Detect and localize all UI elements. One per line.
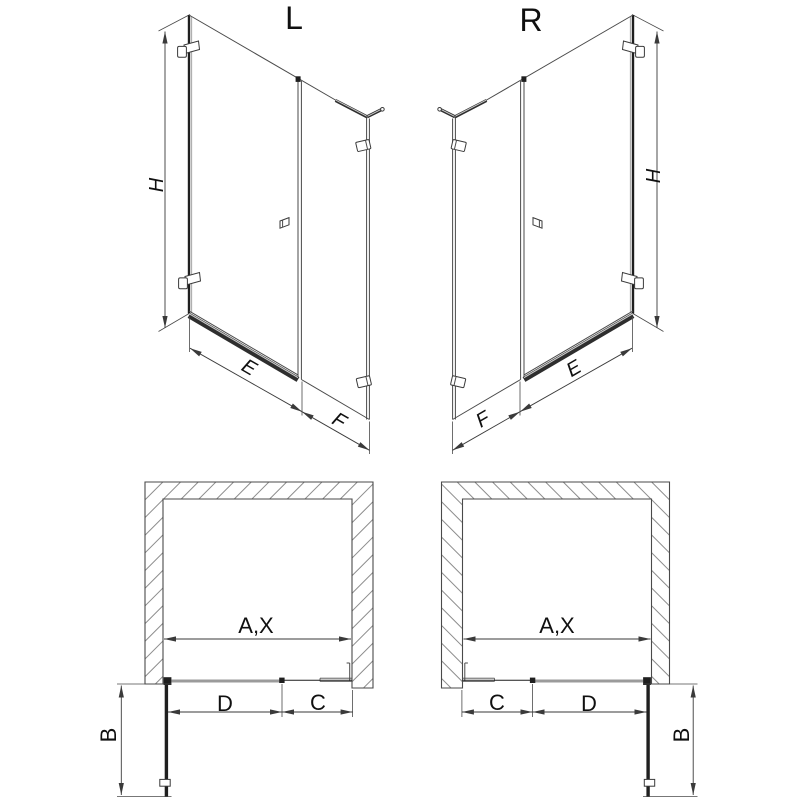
dim-label-opening-plan-left: A,X xyxy=(238,613,274,638)
technical-drawing-page: L H E F R H E F A,X D C B A,X C D B xyxy=(0,0,800,800)
front-view-left: L H E F xyxy=(146,0,384,454)
dim-label-door-width-front-right: E xyxy=(563,356,586,382)
dim-label-side-panel-front-left: F xyxy=(328,408,351,434)
plan-view-right: A,X C D B xyxy=(442,482,698,797)
dim-label-side-panel-plan-left: C xyxy=(310,690,326,715)
dim-label-open-door-plan-right: B xyxy=(669,728,694,743)
dim-label-door-plan-left: D xyxy=(217,691,233,716)
dim-label-open-door-plan-left: B xyxy=(96,728,121,743)
front-view-right: R H E F xyxy=(438,2,665,454)
plan-view-left: A,X D C B xyxy=(96,482,373,797)
shower-enclosure-drawing: L H E F R H E F A,X D C B A,X C D B xyxy=(0,0,800,800)
variant-label-left: L xyxy=(285,0,303,36)
variant-label-right: R xyxy=(519,2,542,38)
dim-label-side-panel-front-right: F xyxy=(472,406,495,432)
dim-label-height-front-left: H xyxy=(146,177,168,192)
dim-label-height-front-right: H xyxy=(643,168,665,183)
dim-label-opening-plan-right: A,X xyxy=(539,613,575,638)
dim-label-door-plan-right: D xyxy=(581,691,597,716)
dim-label-side-panel-plan-right: C xyxy=(489,690,505,715)
